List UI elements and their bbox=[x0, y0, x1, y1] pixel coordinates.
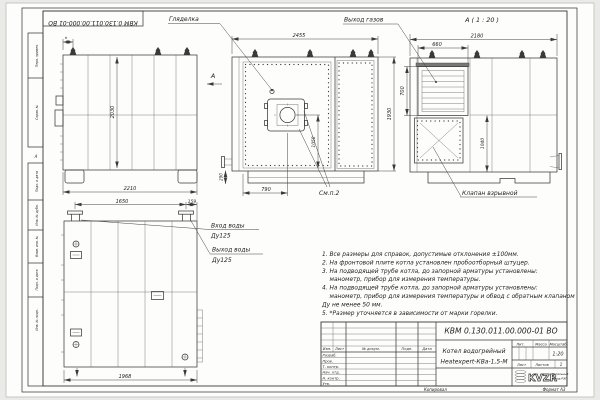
see-note-label: См.п.2 bbox=[319, 190, 339, 197]
top-doc-number: КВМ 0.130.011.00.000-01 ВО bbox=[48, 19, 138, 26]
note-line: 5. *Размер уточняется в зависимости от м… bbox=[322, 311, 498, 317]
logo-sub-line2: завод РЭП bbox=[552, 377, 568, 381]
product-name-line2: Heatexpert-КВа-1,5-М bbox=[440, 359, 508, 366]
margin-label-vzam-inv: Взам. инв. № bbox=[35, 236, 39, 257]
col-izm: Изм. bbox=[323, 347, 331, 351]
note-line: манометр, прибор для измерения температу… bbox=[330, 294, 576, 300]
row-utv: Утв. bbox=[323, 382, 331, 386]
mass-label: Масса bbox=[535, 343, 546, 347]
dim-pipe-to-edge: 159 bbox=[188, 199, 197, 205]
dim-base-height: 290 bbox=[219, 173, 224, 181]
explosion-valve-label: Клапан взрывной bbox=[462, 190, 518, 197]
boiler-drawing: Перв. примен. Справ. № А Подп. и дата Ин… bbox=[0, 0, 600, 400]
col-list: Лист bbox=[334, 347, 345, 351]
dim-front-width: 2455 bbox=[293, 33, 306, 39]
gas-outlet-label: Выход газов bbox=[344, 17, 384, 24]
scale-value: 1:20 bbox=[552, 352, 563, 358]
row-razrab: Разраб. bbox=[323, 354, 337, 358]
margin-label-inv-dubl: Инв. № дубл. bbox=[35, 204, 39, 225]
col-podp: Подп. bbox=[402, 347, 413, 351]
dim-bottom-width: 1968 bbox=[119, 374, 132, 380]
copied-label: Копировал bbox=[424, 387, 447, 392]
drawing-sheet: Перв. примен. Справ. № А Подп. и дата Ин… bbox=[0, 0, 600, 400]
margin-label-perv-primen: Перв. примен. bbox=[35, 44, 39, 67]
dim-grille-width: 660 bbox=[432, 42, 442, 48]
peephole-label: Гляделка bbox=[169, 16, 199, 23]
dim-grille-height: 700 bbox=[400, 86, 406, 96]
water-inlet-label: Вход воды bbox=[211, 223, 245, 230]
scale-label: Масштаб bbox=[549, 343, 567, 347]
note-line: 1. Все размеры для справок, допустимые о… bbox=[322, 252, 519, 258]
water-outlet-label: Выход воды bbox=[212, 247, 250, 254]
dim-front-height: 1930 bbox=[387, 108, 393, 121]
note-line: Ду не менее 50 мм. bbox=[321, 302, 383, 308]
note-line: 4. На подводящей трубе котла, до запорно… bbox=[322, 286, 538, 292]
dim-burner-offset: 790 bbox=[261, 187, 271, 193]
doc-number: КВМ 0.130.011.00.000-01 ВО bbox=[444, 327, 557, 336]
note-line: 3. На подводящей трубе котла, до запорно… bbox=[322, 269, 538, 275]
lit-label: Лит. bbox=[515, 343, 524, 347]
product-name-line1: Котел водогрейный bbox=[443, 348, 506, 355]
logo-sub-line1: Котельный bbox=[552, 372, 569, 376]
margin-label-podp-data-2: Подп. и дата bbox=[35, 269, 39, 290]
margin-label-inv-podl: Инв. № подл. bbox=[35, 309, 39, 330]
dim-pipes-spacing: 1650 bbox=[116, 199, 129, 205]
note-line: 2. На фронтовой плите котла установлен п… bbox=[322, 260, 530, 266]
view-a-title: А ( 1 : 20 ) bbox=[464, 16, 499, 24]
dim-view-a-width: 2180 bbox=[471, 34, 484, 40]
format-label: Формат А3 bbox=[543, 387, 566, 392]
row-prov: Пров. bbox=[323, 359, 333, 363]
margin-label-sprav: Справ. № bbox=[35, 105, 39, 120]
water-outlet-dn: Ду125 bbox=[211, 257, 232, 264]
sheet-label: Лист bbox=[516, 363, 527, 367]
margin-zone-letter: А bbox=[34, 154, 38, 159]
dim-rear-height: 1040 bbox=[480, 138, 486, 149]
col-doc: № докум. bbox=[361, 347, 380, 351]
row-nkontr: Н. контр. bbox=[323, 376, 340, 380]
water-inlet-dn: Ду125 bbox=[210, 233, 231, 240]
row-tkontr: Т. контр. bbox=[323, 365, 340, 369]
dim-side-width: 2210 bbox=[124, 186, 137, 192]
margin-label-podp-data-1: Подп. и дата bbox=[35, 171, 39, 192]
row-nachotd: Нач. отд. bbox=[323, 371, 340, 375]
sheets-value: 1 bbox=[560, 362, 563, 367]
sheets-label: Листов bbox=[534, 363, 548, 367]
dim-side-height: 2030 bbox=[110, 106, 116, 119]
note-line: манометр, прибор для измерения температу… bbox=[330, 277, 481, 283]
col-data: Дата bbox=[421, 347, 431, 351]
section-arrow-letter: А bbox=[210, 72, 215, 80]
